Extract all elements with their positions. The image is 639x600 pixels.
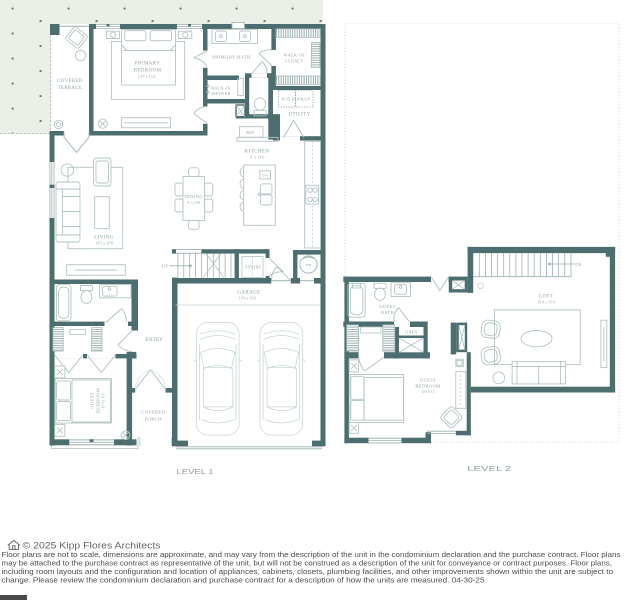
svg-text:14'7 x 15'4: 14'7 x 15'4 xyxy=(138,74,155,79)
svg-text:BEDROOM: BEDROOM xyxy=(96,388,101,413)
svg-text:COVERED: COVERED xyxy=(141,410,165,415)
svg-text:PANTRY: PANTRY xyxy=(245,265,261,269)
svg-text:BEDROOM: BEDROOM xyxy=(134,69,162,74)
svg-text:ENTRY: ENTRY xyxy=(145,338,163,343)
svg-text:GUEST: GUEST xyxy=(420,378,437,383)
svg-text:COVERED: COVERED xyxy=(57,79,83,84)
svg-text:GUEST: GUEST xyxy=(379,304,395,309)
svg-text:DW: DW xyxy=(262,173,268,177)
svg-text:SHOWER: SHOWER xyxy=(211,91,230,96)
svg-text:UP: UP xyxy=(162,264,168,269)
svg-text:19'4 x 19'6: 19'4 x 19'6 xyxy=(239,296,256,301)
svg-text:9' x 14'6: 9' x 14'6 xyxy=(250,155,263,160)
svg-text:DINING: DINING xyxy=(184,194,203,199)
svg-text:10'4 x 11'0: 10'4 x 11'0 xyxy=(102,393,106,409)
svg-text:BATH: BATH xyxy=(381,310,394,315)
svg-text:TERRACE: TERRACE xyxy=(58,86,83,91)
svg-text:16'4 x 15'4: 16'4 x 15'4 xyxy=(537,300,554,305)
svg-text:CLOSET: CLOSET xyxy=(285,59,303,64)
svg-text:WH: WH xyxy=(305,263,311,267)
svg-text:PORCH: PORCH xyxy=(145,417,162,422)
svg-text:9' x 10'6: 9' x 10'6 xyxy=(187,201,200,205)
svg-text:change. Please review the cond: change. Please review the condominium de… xyxy=(2,576,485,585)
svg-text:UTILITY: UTILITY xyxy=(289,113,311,118)
svg-text:PRIMARY BATH: PRIMARY BATH xyxy=(212,55,251,60)
svg-text:14'5 x 18'8: 14'5 x 18'8 xyxy=(95,241,112,246)
svg-text:PRIMARY: PRIMARY xyxy=(135,62,160,67)
svg-text:LEVEL 1: LEVEL 1 xyxy=(177,467,214,476)
svg-text:DN: DN xyxy=(575,262,582,267)
svg-text:LINEN: LINEN xyxy=(405,331,418,335)
svg-text:WALK-IN: WALK-IN xyxy=(211,86,231,91)
svg-text:10'4 x 11': 10'4 x 11' xyxy=(421,390,435,394)
svg-text:REF: REF xyxy=(246,131,254,135)
svg-text:WALK-IN: WALK-IN xyxy=(284,53,305,58)
svg-text:© 2025 Kipp Flores Architects: © 2025 Kipp Flores Architects xyxy=(23,541,162,551)
svg-text:LEVEL 2: LEVEL 2 xyxy=(467,464,511,473)
svg-text:W/D HOOKUP: W/D HOOKUP xyxy=(282,97,310,101)
svg-text:BEDROOM: BEDROOM xyxy=(415,384,440,389)
svg-text:GUEST: GUEST xyxy=(90,392,95,409)
